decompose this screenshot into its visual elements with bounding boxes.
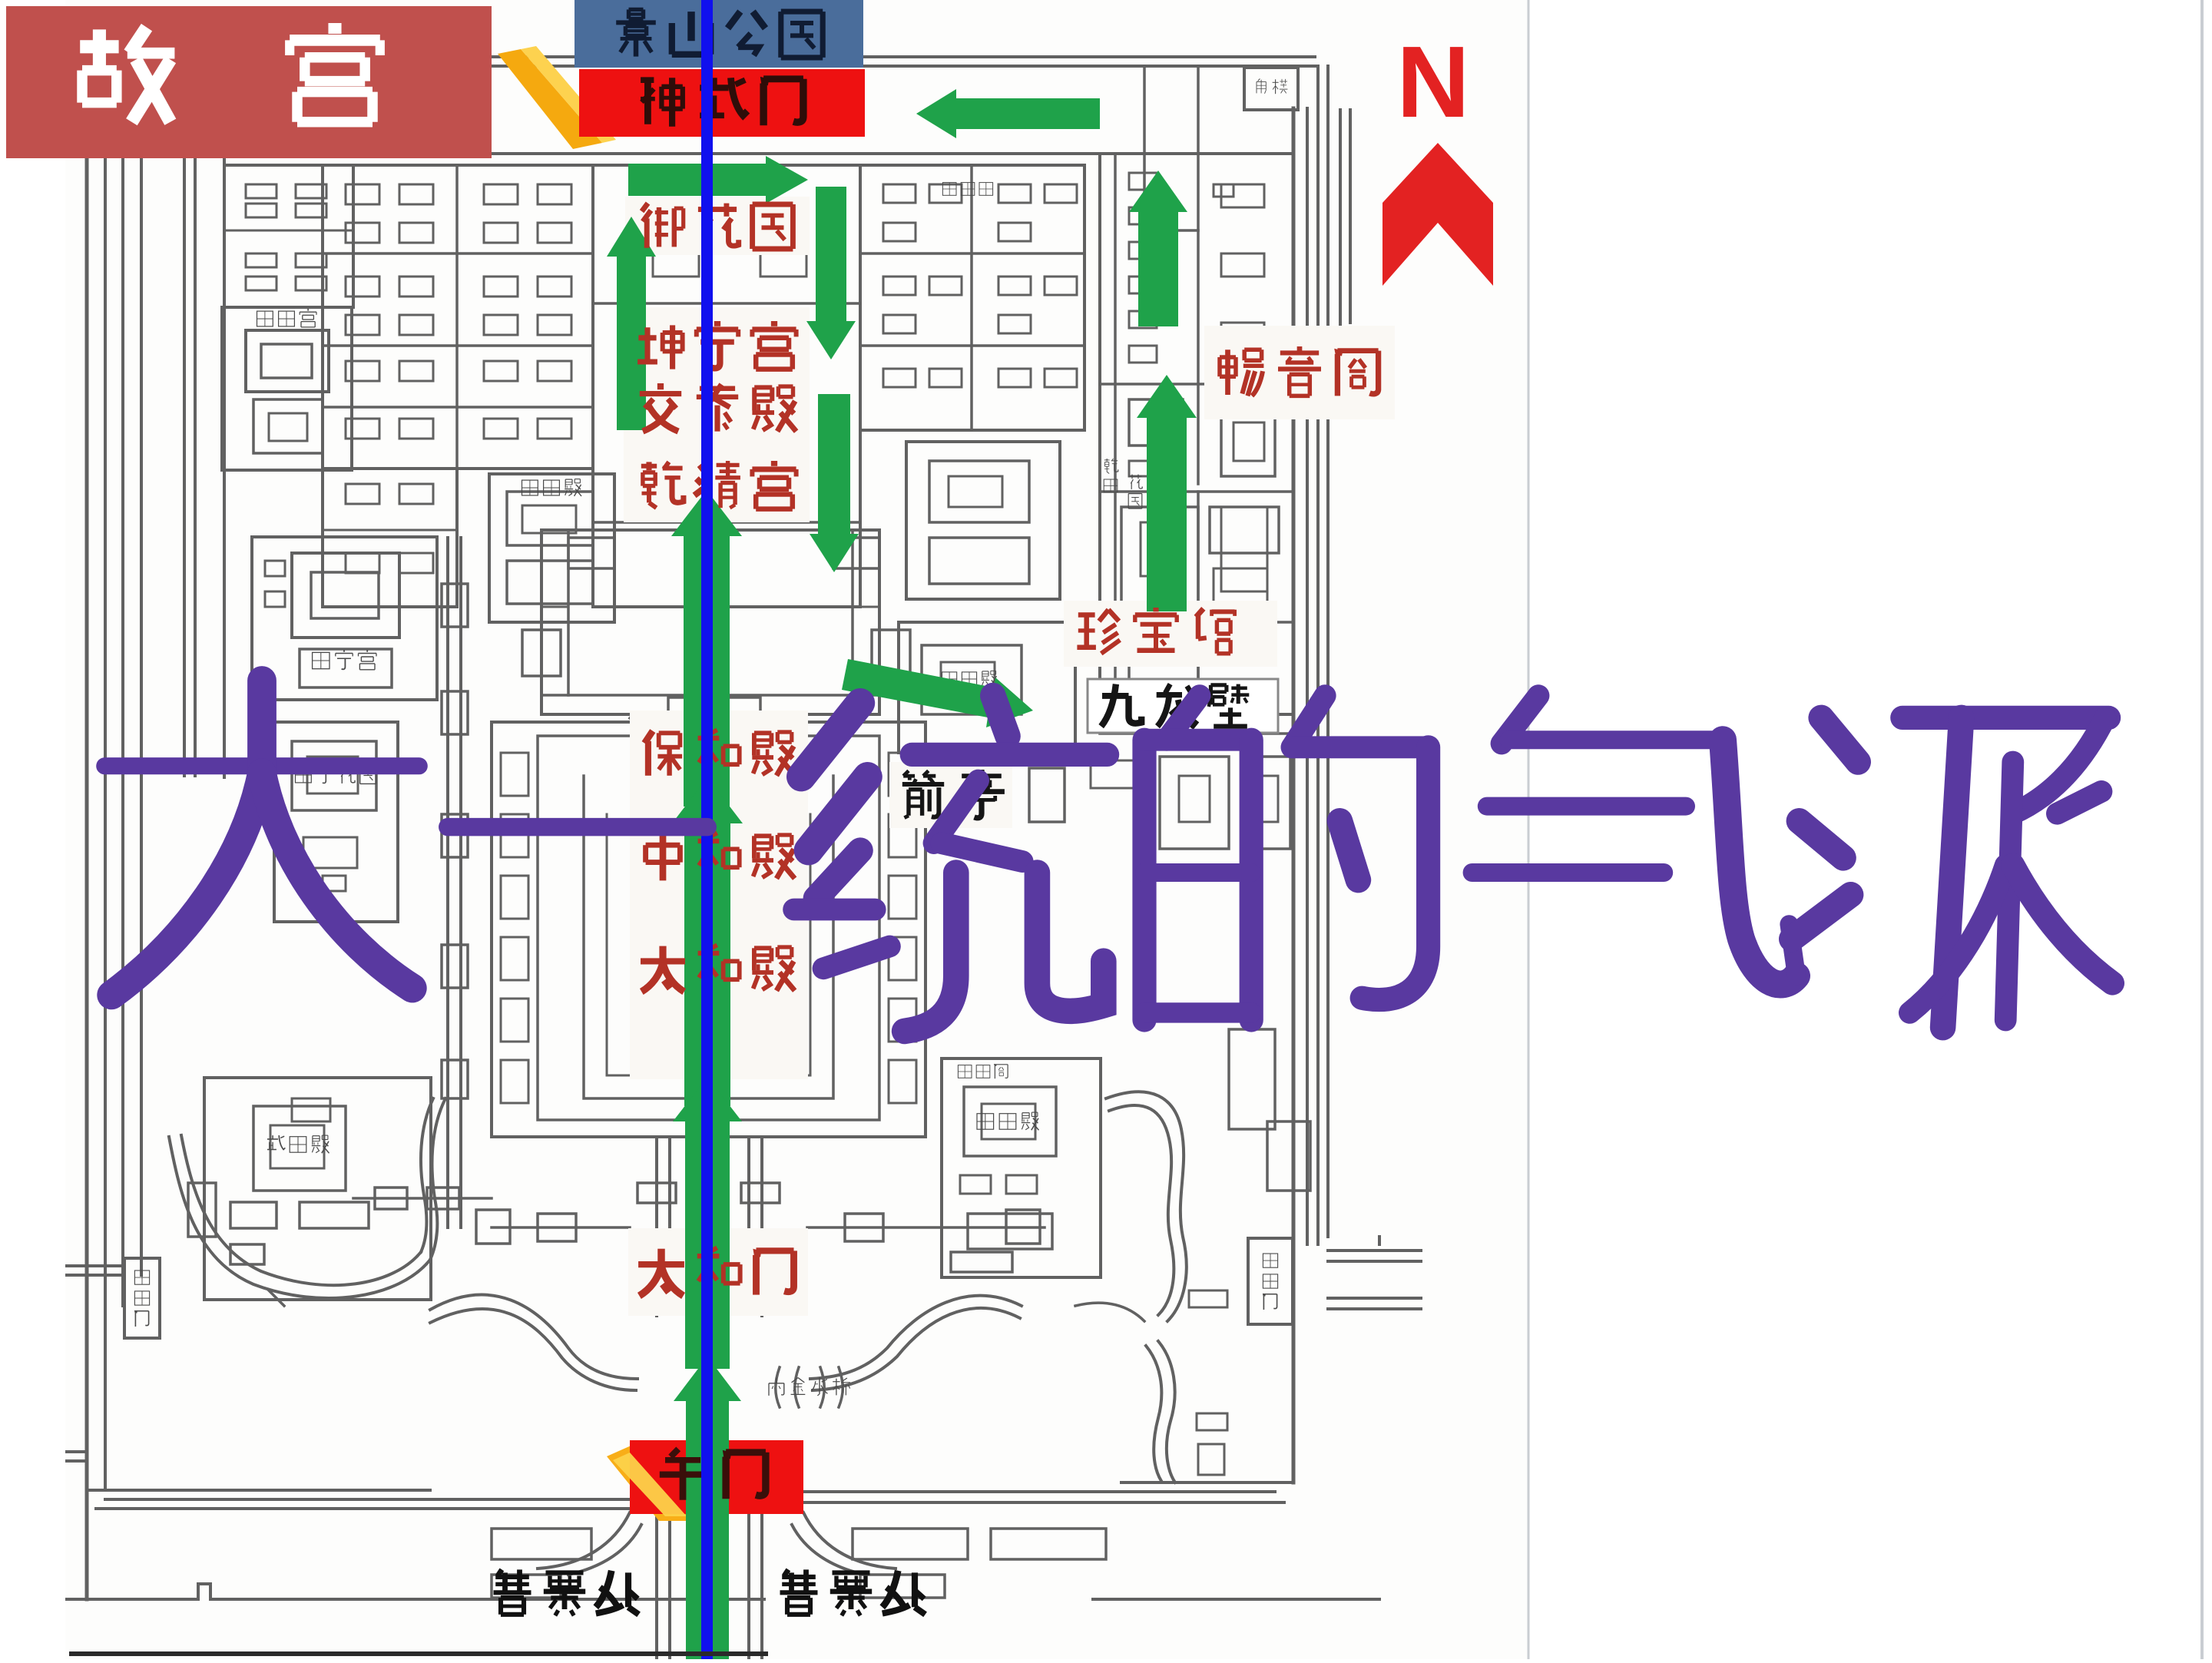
svg-text:N: N (1396, 25, 1469, 138)
